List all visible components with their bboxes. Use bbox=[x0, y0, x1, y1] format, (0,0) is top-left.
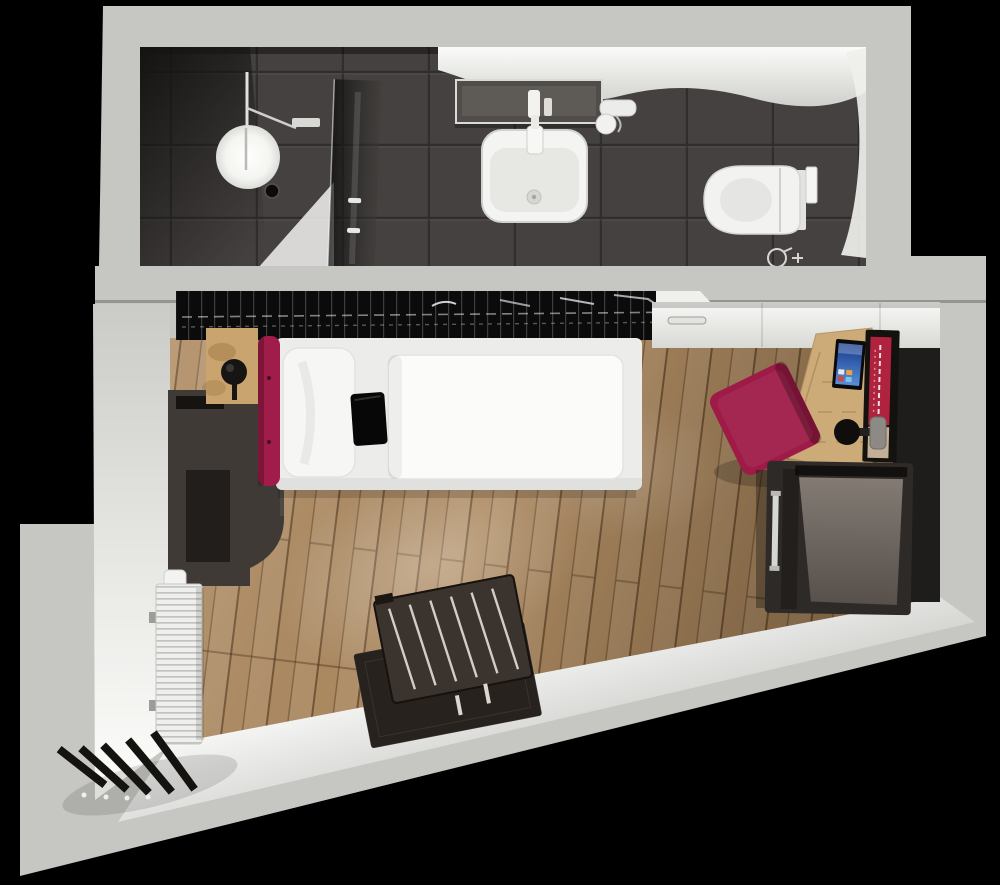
minibar-cabinet bbox=[756, 461, 913, 616]
minibar-front bbox=[797, 477, 903, 605]
nightstand bbox=[202, 328, 258, 404]
toilet-bowl-shade bbox=[720, 178, 772, 222]
flush-plate bbox=[806, 167, 817, 203]
faucet-handle bbox=[531, 115, 539, 129]
tv-tile-1 bbox=[838, 369, 844, 375]
bed-tray-bag bbox=[350, 392, 388, 446]
smart-tv bbox=[832, 339, 866, 390]
headboard-shade bbox=[258, 336, 264, 486]
soap-bottle bbox=[528, 90, 540, 118]
sphere-table-lamp bbox=[221, 359, 247, 385]
hairdryer-head bbox=[596, 114, 616, 134]
radiator-side-shade bbox=[196, 588, 204, 740]
minibar-top-slot bbox=[795, 465, 907, 477]
soap-bottle-small bbox=[544, 98, 552, 116]
floor-plan-svg bbox=[0, 0, 1000, 885]
minibar-handle-top bbox=[771, 491, 781, 496]
single-bed bbox=[258, 336, 642, 498]
vertical-radiator bbox=[149, 570, 204, 744]
radiator-body bbox=[156, 584, 202, 744]
minibar-side-shade bbox=[781, 469, 799, 609]
minibar-handle-bottom bbox=[769, 566, 779, 571]
slat-tip-3 bbox=[125, 796, 130, 801]
glass-handle-top bbox=[348, 198, 361, 203]
bathroom bbox=[140, 47, 866, 271]
door-top-shadow bbox=[652, 302, 940, 308]
lamp-highlight bbox=[226, 364, 234, 372]
basin-drain-hole bbox=[532, 195, 536, 199]
lamp-mount bbox=[870, 417, 886, 449]
tv-tile-4 bbox=[845, 377, 851, 383]
tv-tile-3 bbox=[837, 376, 843, 382]
floor-plan-render bbox=[0, 0, 1000, 885]
tv-screen-glow bbox=[838, 343, 863, 355]
shower-mixer bbox=[292, 118, 320, 127]
nightstand-grain bbox=[208, 343, 236, 361]
slat-tip-4 bbox=[146, 795, 151, 800]
glass-handle-bottom bbox=[347, 228, 360, 233]
shower-glass-partition bbox=[328, 79, 382, 271]
duvet bbox=[388, 355, 623, 479]
shower-ceiling-light bbox=[216, 125, 280, 189]
slat-tip-2 bbox=[104, 795, 109, 800]
headboard-button-1 bbox=[267, 376, 271, 380]
basin-faucet bbox=[527, 126, 543, 154]
bed-base-edge bbox=[276, 478, 642, 490]
nightstand-grain-2 bbox=[202, 380, 226, 396]
headboard-button-2 bbox=[267, 440, 271, 444]
pillow bbox=[283, 348, 355, 477]
door-handle bbox=[668, 317, 706, 324]
shower-knob bbox=[265, 184, 279, 198]
lamp-knob bbox=[834, 419, 860, 445]
slat-tip-1 bbox=[82, 793, 87, 798]
cabinet-opening bbox=[186, 470, 230, 562]
tv-tile-2 bbox=[846, 370, 852, 376]
duvet-fold bbox=[388, 355, 402, 479]
